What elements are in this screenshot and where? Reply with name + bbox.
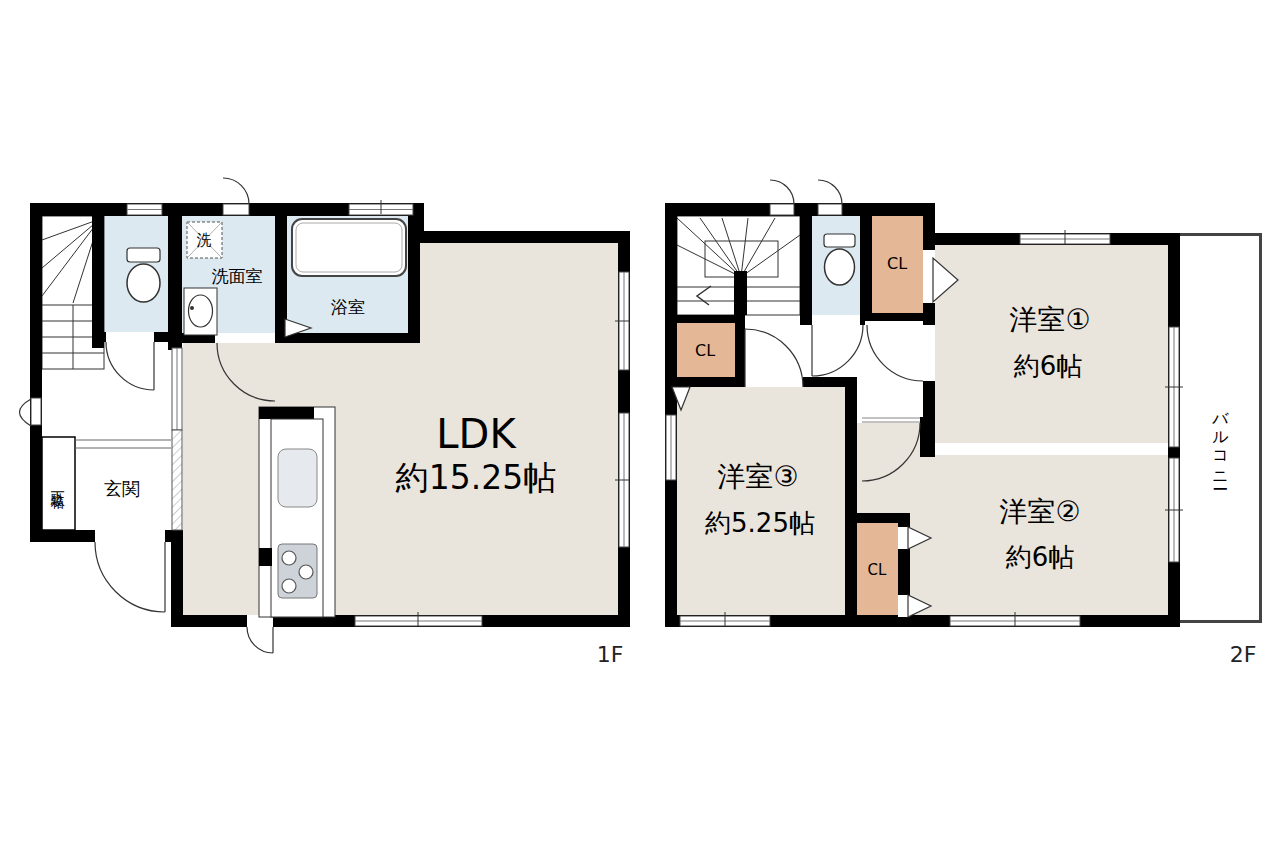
floorplan-canvas: [0, 0, 1280, 850]
closet1-label: CL: [887, 256, 907, 273]
floor-2f-plan: [665, 180, 1262, 627]
floor1-tag: 1F: [597, 643, 624, 666]
closet3-label: CL: [868, 563, 887, 579]
shoe-cabinet-label: 下駄箱: [51, 480, 66, 486]
stairs-2f: [677, 216, 800, 315]
room2-area-label: 約6帖: [1006, 544, 1075, 571]
room3-name-label: 洋室③: [717, 462, 798, 491]
hall-ldk-partition: [172, 348, 182, 530]
ldk-area-label: 約15.25帖: [396, 461, 556, 496]
ldk-name-label: LDK: [436, 413, 515, 455]
toilet-1f-icon: [127, 248, 160, 302]
entrance-step-lines: [75, 440, 171, 448]
toilet-2f-icon: [824, 234, 855, 285]
room1-area-label: 約6帖: [1014, 353, 1083, 380]
vanity-sink-icon: [184, 288, 217, 335]
room3-area-label: 約5.25帖: [705, 510, 815, 537]
kitchen-counter: [259, 407, 335, 617]
washroom-label: 洗面室: [212, 268, 263, 286]
floor-1f-plan: [20, 178, 631, 653]
closet2-label: CL: [695, 343, 715, 360]
washer-label: 洗: [197, 233, 212, 249]
entrance-label: 玄関: [104, 480, 140, 499]
bathroom-label: 浴室: [331, 299, 365, 317]
floorplan-page: 洗 洗面室 浴室 LDK 約15.25帖 玄関 下駄箱 1F CL CL CL …: [0, 0, 1280, 850]
bathtub-icon: [292, 219, 406, 276]
room1-name-label: 洋室①: [1009, 305, 1090, 334]
room2-name-label: 洋室②: [999, 497, 1080, 526]
floor2-tag: 2F: [1230, 643, 1257, 666]
rooms-2f: [677, 216, 1168, 615]
balcony-label: バルコニー: [1212, 401, 1229, 484]
